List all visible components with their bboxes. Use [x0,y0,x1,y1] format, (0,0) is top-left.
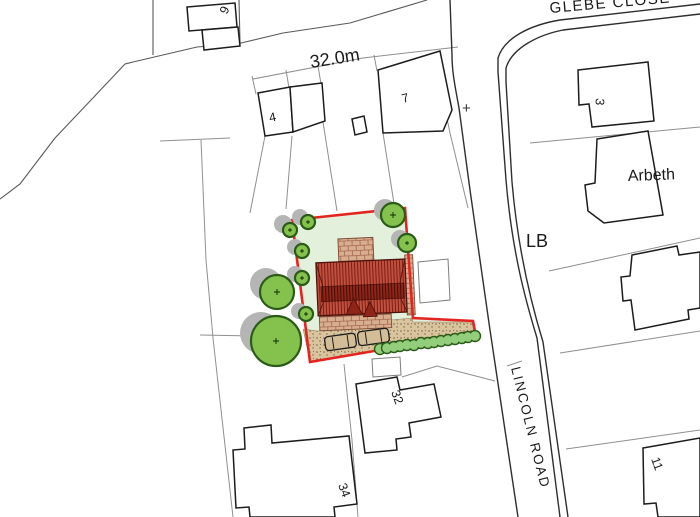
outbuilding-east [418,259,450,303]
building-11 [643,438,700,517]
label-house-3: 3 [592,98,607,106]
building-6-main [187,3,237,31]
lincoln-road-west-edge [450,0,518,517]
label-lincoln-road: LINCOLN ROAD [508,365,553,490]
label-house-name-arbeth: Arbeth [628,166,676,185]
building-7 [378,51,452,133]
terrace-step [352,116,367,135]
building-4 [258,87,293,136]
building-unlabelled-east [621,246,700,330]
label-letter-box: LB [526,231,548,251]
building-4-east-wing [290,83,325,132]
survey-cross-mark: + [462,100,471,117]
building-6-wing [202,27,240,50]
roof-ridge-band [321,283,405,302]
site-plan: GLEBE CLOSE LINCOLN ROAD 32.0m LB Arbeth… [0,0,700,517]
building-3 [578,62,654,127]
label-frontage-dimension: 32.0m [308,44,361,72]
site-plan-map: GLEBE CLOSE LINCOLN ROAD 32.0m LB Arbeth… [0,0,700,517]
rear-patio-bricks [338,237,374,262]
building-34 [233,425,357,517]
outbuilding-south [372,357,401,377]
